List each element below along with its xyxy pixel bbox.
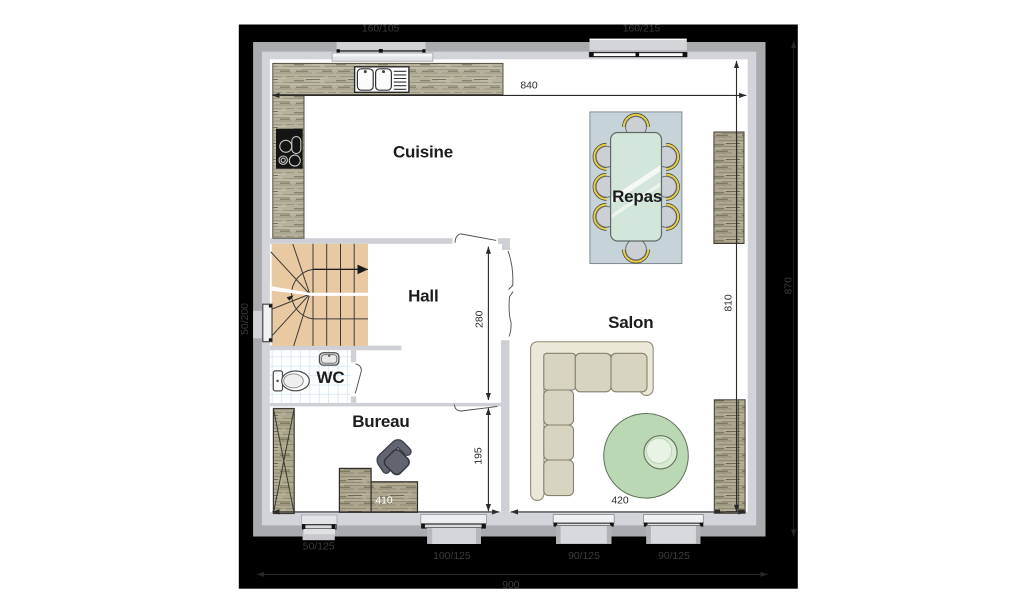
svg-text:Repas: Repas: [612, 187, 662, 206]
svg-text:Hall: Hall: [408, 287, 438, 306]
svg-text:280: 280: [475, 310, 486, 328]
svg-text:410: 410: [375, 495, 393, 506]
svg-text:810: 810: [724, 294, 735, 312]
svg-text:100/125: 100/125: [433, 551, 471, 562]
svg-text:90/125: 90/125: [658, 551, 690, 562]
svg-text:870: 870: [784, 277, 795, 295]
svg-text:Bureau: Bureau: [352, 412, 409, 431]
svg-text:840: 840: [520, 81, 538, 92]
svg-text:50/200: 50/200: [240, 303, 251, 335]
svg-text:160/105: 160/105: [362, 24, 400, 35]
svg-text:420: 420: [611, 495, 629, 506]
svg-text:WC: WC: [317, 368, 345, 387]
svg-text:Cuisine: Cuisine: [393, 142, 453, 161]
svg-text:Salon: Salon: [608, 313, 653, 332]
svg-text:195: 195: [474, 447, 485, 465]
svg-text:160/215: 160/215: [623, 24, 661, 35]
svg-text:90/125: 90/125: [568, 551, 600, 562]
svg-text:50/125: 50/125: [303, 541, 335, 552]
